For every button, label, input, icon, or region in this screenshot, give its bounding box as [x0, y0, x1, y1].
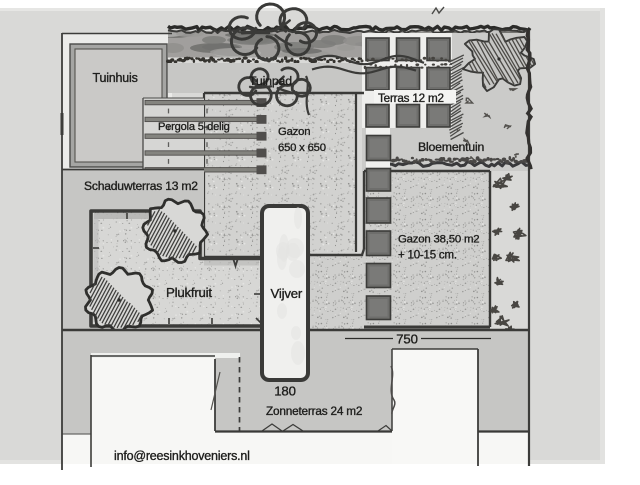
svg-text:+ 10-15 cm.: + 10-15 cm.: [398, 250, 457, 262]
svg-text:650 x 650: 650 x 650: [278, 142, 326, 154]
svg-text:Vijver: Vijver: [271, 286, 303, 301]
svg-text:Tuinpad: Tuinpad: [249, 74, 292, 88]
svg-text:Gazon 38,50 m2: Gazon 38,50 m2: [398, 234, 479, 246]
svg-text:Pergola 5-delig: Pergola 5-delig: [158, 121, 230, 133]
svg-text:Tuinhuis: Tuinhuis: [93, 71, 138, 85]
svg-text:180: 180: [274, 384, 295, 399]
svg-text:Plukfruit: Plukfruit: [166, 285, 212, 300]
svg-text:Gazon: Gazon: [278, 126, 310, 138]
svg-text:Bloementuin: Bloementuin: [418, 140, 485, 154]
svg-text:Zonneterras 24 m2: Zonneterras 24 m2: [266, 404, 362, 418]
svg-text:Schaduwterras 13 m2: Schaduwterras 13 m2: [84, 179, 198, 193]
svg-text:750: 750: [396, 332, 417, 347]
svg-text:Terras 12 m2: Terras 12 m2: [378, 92, 444, 105]
svg-text:info@reesinkhoveniers.nl: info@reesinkhoveniers.nl: [114, 449, 250, 463]
